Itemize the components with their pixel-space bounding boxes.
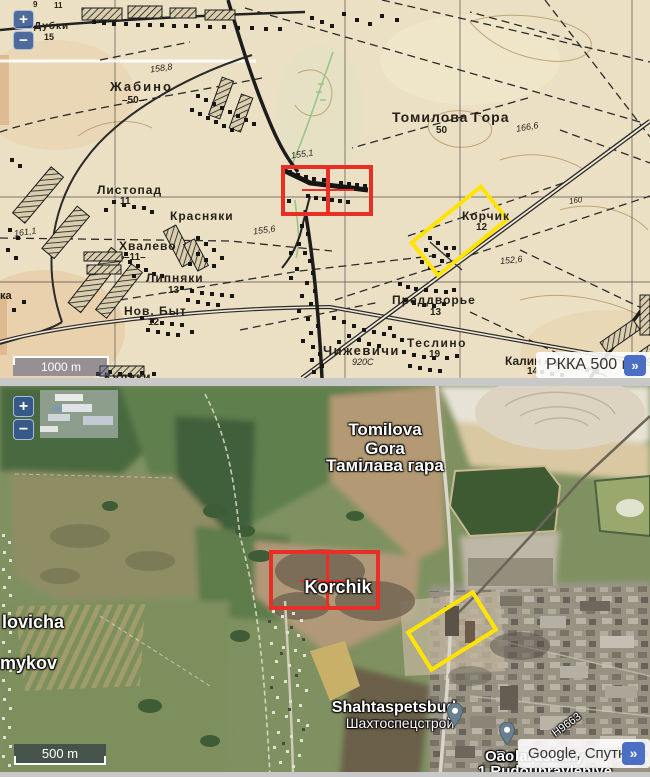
- zoom-out-button[interactable]: −: [13, 31, 34, 50]
- zoom-out-button[interactable]: −: [13, 419, 34, 440]
- topo-attribution-label: РККА 500 м: [546, 356, 633, 374]
- satellite-scale-label: 500 m: [42, 746, 78, 761]
- poi-pin-shahtaspetsbud[interactable]: [447, 703, 463, 726]
- bottom-edge-strip: [0, 772, 650, 777]
- poi-pin-belaruskaliy[interactable]: [499, 722, 515, 745]
- topo-scale-bar: 1000 m: [13, 356, 109, 376]
- red-marker-sat-crosshair: [300, 580, 347, 582]
- topo-expand-button[interactable]: »: [624, 355, 646, 376]
- topo-scale-label: 1000 m: [41, 360, 81, 374]
- satellite-expand-button[interactable]: »: [622, 742, 645, 765]
- satellite-zoom-control: + −: [13, 396, 35, 442]
- panel-divider: [0, 378, 650, 386]
- satellite-scale-bar: 500 m: [14, 744, 106, 765]
- red-marker-topo-crosshair: [302, 189, 354, 191]
- zoom-in-button[interactable]: +: [13, 10, 34, 29]
- topo-zoom-control: + −: [13, 10, 35, 52]
- screen: Дубки15911Жабино–50–158,8Томилова Гора50…: [0, 0, 650, 777]
- zoom-in-button[interactable]: +: [13, 396, 34, 417]
